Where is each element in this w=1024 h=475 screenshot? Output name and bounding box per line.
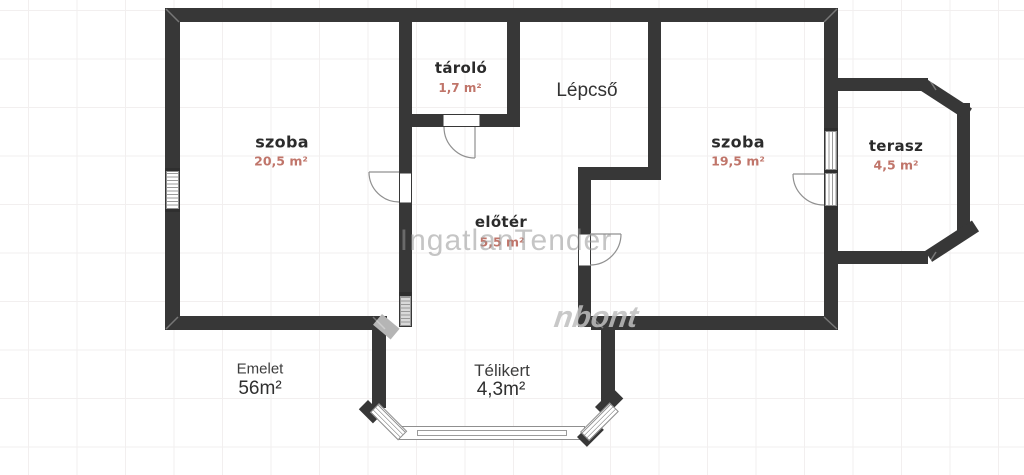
wall-terrace-angle-top — [918, 78, 972, 119]
wall-stairs-right — [648, 22, 661, 180]
wall-terrace-angle-bottom — [925, 221, 979, 262]
room-area-szoba-right: 19,5 m² — [711, 154, 765, 169]
room-label-szoba-left: szoba — [255, 133, 309, 152]
room-area-tarolo: 1,7 m² — [438, 81, 481, 95]
window-glazing-line — [417, 430, 567, 436]
label-wintergarden-area: 4,3m² — [477, 379, 526, 401]
door-storage-opening — [443, 115, 480, 126]
window-terrace-wall — [825, 131, 837, 170]
wall-top — [165, 8, 838, 22]
wall-terrace-top — [838, 78, 928, 91]
door-arc-terrace — [793, 174, 824, 205]
wall-terrace-bottom — [838, 251, 928, 264]
door-arc-storage — [444, 127, 475, 158]
wall-storage-right — [507, 22, 520, 127]
room-label-tarolo: tároló — [435, 59, 487, 77]
wall-terrace-right — [957, 103, 970, 234]
window-wintergarden-band — [399, 426, 585, 440]
room-label-terasz: terasz — [869, 137, 923, 155]
label-staircase: Lépcső — [556, 80, 617, 102]
door-room-left-opening — [400, 173, 411, 203]
wall-bottom-left — [165, 316, 387, 330]
door-terrace-opening — [825, 173, 837, 206]
label-level-area: 56m² — [238, 378, 281, 400]
window-cap — [824, 206, 838, 210]
window-divider-end — [400, 296, 411, 326]
room-area-szoba-left: 20,5 m² — [254, 154, 308, 169]
label-level: Emelet — [237, 361, 284, 378]
floor-plan: szoba 20,5 m² tároló 1,7 m² szoba 19,5 m… — [0, 0, 1024, 475]
watermark-text: IngatlanTender — [400, 224, 613, 258]
watermark-partial-text: nbont — [552, 301, 640, 335]
door-arc-room-left — [369, 172, 399, 202]
window-cap — [165, 209, 180, 212]
label-wintergarden: Télikert — [474, 361, 530, 381]
window-wintergarden-left — [370, 403, 407, 440]
room-area-terasz: 4,5 m² — [874, 158, 919, 173]
window-left-wall — [166, 171, 179, 209]
wall-wintergarden-left — [372, 330, 386, 408]
wall-miter-seams — [166, 9, 936, 329]
room-label-szoba-right: szoba — [711, 133, 765, 152]
wall-stairs-bottom — [578, 167, 661, 180]
